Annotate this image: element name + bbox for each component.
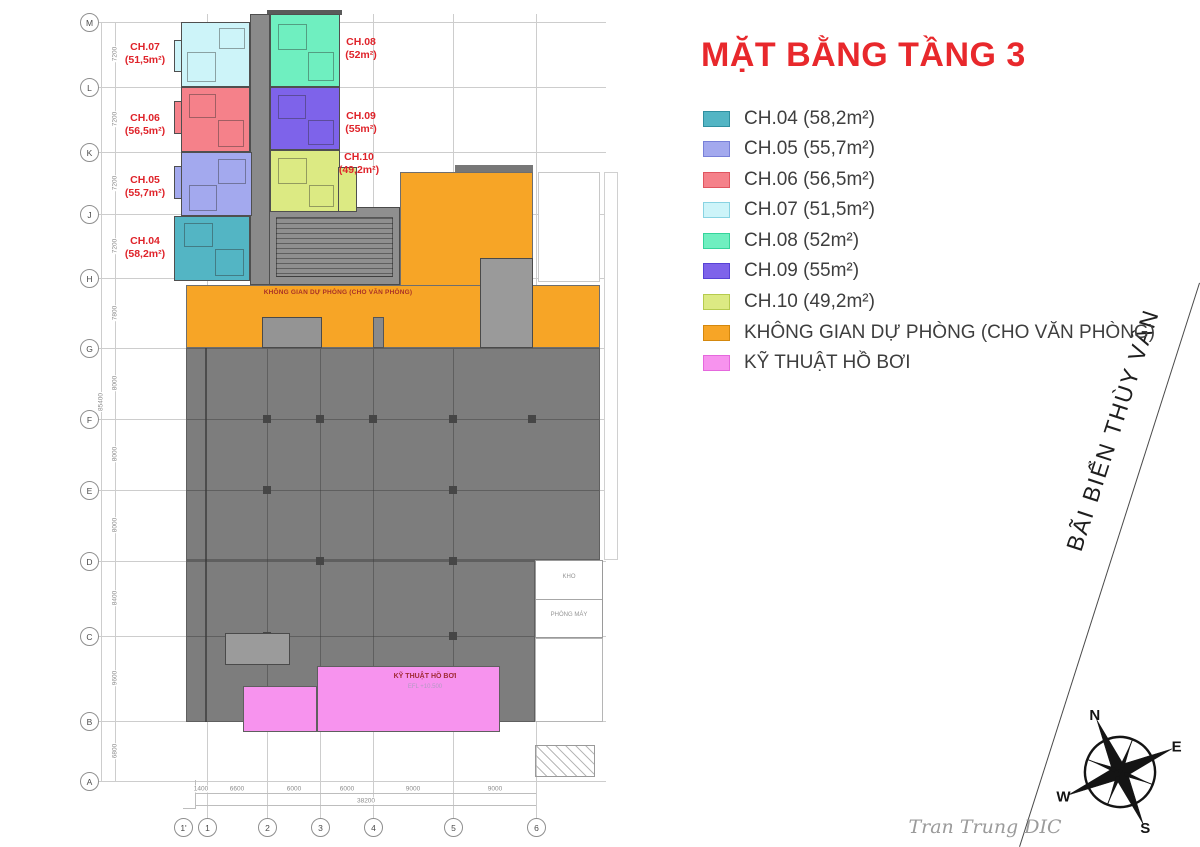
row-bubble-H: H <box>80 269 99 288</box>
plan-label-ch04-name: CH.04 <box>100 235 190 248</box>
room-label-phong-may: PHÒNG MÁY <box>538 612 600 618</box>
unit-ch08-room <box>278 24 307 50</box>
service-outline-lower <box>535 638 603 722</box>
body-line-hF <box>187 419 599 420</box>
plan-label-ch09: CH.09 (55m²) <box>316 110 406 136</box>
legend-item-ch05: CH.05 (55,7m²) <box>703 141 1155 158</box>
legend-label-ch10: CH.10 (49,2m²) <box>744 291 875 313</box>
col-bubble-5-label: 5 <box>451 823 456 833</box>
row-bubble-F-label: F <box>87 415 92 425</box>
leader-col-1p <box>183 808 196 809</box>
dim-2-3: 6000 <box>285 786 303 793</box>
row-bubble-M-label: M <box>86 18 93 28</box>
row-bubble-J-label: J <box>87 210 91 220</box>
row-bubble-M: M <box>80 13 99 32</box>
col-bubble-1-label: 1 <box>205 823 210 833</box>
dim-D-C: 8400 <box>112 590 119 606</box>
plan-label-ch06: CH.06 (56,5m²) <box>100 112 190 138</box>
dim-5-6: 9000 <box>486 786 504 793</box>
column-square <box>449 632 457 640</box>
corridor-core <box>250 14 270 285</box>
room-label-kho: KHO <box>543 574 595 580</box>
unit-ch10-room <box>309 185 334 207</box>
legend-swatch-ch05 <box>703 141 730 157</box>
legend-label-ch07: CH.07 (51,5m²) <box>744 199 875 221</box>
col-bubble-2: 2 <box>258 818 277 837</box>
plan-label-ch04: CH.04 (58,2m²) <box>100 235 190 261</box>
legend-item-ch10: CH.10 (49,2m²) <box>703 294 1155 311</box>
legend-swatch-ch06 <box>703 172 730 188</box>
plan-label-ch10-name: CH.10 <box>314 151 404 164</box>
legend-label-reserve: KHÔNG GIAN DỰ PHÒNG (CHO VĂN PHÒNG) <box>744 322 1155 344</box>
roof-cap-right <box>455 165 533 172</box>
dim-C-B: 9600 <box>112 670 119 686</box>
compass-label-e: E <box>1172 738 1182 755</box>
row-bubble-G-label: G <box>86 344 93 354</box>
dim-3-4: 6000 <box>338 786 356 793</box>
page-title: MẶT BẰNG TẦNG 3 <box>701 36 1026 75</box>
legend-item-ch06: CH.06 (56,5m²) <box>703 171 1155 188</box>
plan-label-ch09-name: CH.09 <box>316 110 406 123</box>
legend-item-ch09: CH.09 (55m²) <box>703 263 1155 280</box>
row-bubble-B: B <box>80 712 99 731</box>
column-pier-band <box>373 317 384 348</box>
row-bubble-B-label: B <box>87 717 93 727</box>
legend-swatch-ch08 <box>703 233 730 249</box>
dim-H-G: 7800 <box>112 305 119 321</box>
legend-swatch-ch09 <box>703 263 730 279</box>
legend-item-pool-tech: KỸ THUẬT HỒ BƠI <box>703 355 1155 372</box>
dim-1p-1: 1400 <box>192 786 210 793</box>
plan-label-ch05-area: (55,7m²) <box>100 187 190 200</box>
plan-label-ch09-area: (55m²) <box>316 123 406 136</box>
dim-cols-total: 38200 <box>355 798 377 805</box>
unit-ch05 <box>181 152 252 216</box>
dim-G-F: 8000 <box>112 375 119 391</box>
compass-label-s: S <box>1140 820 1150 837</box>
col-bubble-6: 6 <box>527 818 546 837</box>
dim-4-5: 9000 <box>404 786 422 793</box>
compass-label-n: N <box>1089 707 1100 724</box>
louver-slats <box>276 217 393 277</box>
col-bubble-3-label: 3 <box>318 823 323 833</box>
plan-label-ch08-area: (52m²) <box>316 49 406 62</box>
legend-item-ch07: CH.07 (51,5m²) <box>703 202 1155 219</box>
unit-ch09-room <box>278 95 306 119</box>
unit-ch06-room <box>189 94 216 117</box>
unit-ch07-room <box>187 52 216 82</box>
column-square <box>263 486 271 494</box>
body-line-hE <box>187 490 599 491</box>
legend-label-ch05: CH.05 (55,7m²) <box>744 138 875 160</box>
row-bubble-F: F <box>80 410 99 429</box>
row-bubble-D-label: D <box>86 557 92 567</box>
stair-core-band <box>262 317 322 348</box>
col-bubble-1p-label: 1' <box>180 823 186 833</box>
row-bubble-E-label: E <box>87 486 93 496</box>
column-square <box>449 486 457 494</box>
plan-label-ch04-area: (58,2m²) <box>100 248 190 261</box>
gridline-row-L <box>97 87 606 88</box>
col-bubble-1p: 1' <box>174 818 193 837</box>
row-bubble-A-label: A <box>87 777 93 787</box>
unit-ch05-room <box>218 159 246 183</box>
pool-tech-sublabel: EFL +10.500 <box>375 684 475 690</box>
reserve-space-label: KHÔNG GIAN DỰ PHÒNG (CHO VĂN PHÒNG) <box>238 289 438 296</box>
row-bubble-J: J <box>80 205 99 224</box>
gridline-col-1p <box>195 780 196 808</box>
plan-label-ch08-name: CH.08 <box>316 36 406 49</box>
legend-swatch-ch07 <box>703 202 730 218</box>
floor-plan-sheet: M L K J H G F E D C B A 1' 1 2 3 4 5 6 7… <box>0 0 1200 847</box>
hatched-ramp <box>535 745 595 777</box>
row-bubble-D: D <box>80 552 99 571</box>
plan-label-ch10-area: (49,2m²) <box>314 164 404 177</box>
column-square <box>369 415 377 423</box>
unit-ch10-room <box>278 158 307 184</box>
signature: Tran Trung DIC <box>908 816 1061 838</box>
body-wall-left <box>205 348 207 722</box>
service-rooms <box>535 560 603 638</box>
neighbor-outline-upper <box>538 172 600 282</box>
column-square <box>449 557 457 565</box>
legend-item-reserve: KHÔNG GIAN DỰ PHÒNG (CHO VĂN PHÒNG) <box>703 324 1155 341</box>
dim-F-E: 8000 <box>112 446 119 462</box>
col-bubble-4-label: 4 <box>371 823 376 833</box>
row-bubble-L-label: L <box>87 83 92 93</box>
column-square <box>528 415 536 423</box>
gridline-row-A <box>97 781 606 782</box>
plan-label-ch06-name: CH.06 <box>100 112 190 125</box>
pool-tech-left <box>243 686 317 732</box>
dim-1-2: 6600 <box>228 786 246 793</box>
row-bubble-E: E <box>80 481 99 500</box>
row-bubble-G: G <box>80 339 99 358</box>
plan-label-ch05-name: CH.05 <box>100 174 190 187</box>
column-square <box>263 415 271 423</box>
col-bubble-4: 4 <box>364 818 383 837</box>
unit-ch06-room <box>218 120 244 147</box>
stair-core-c <box>225 633 290 665</box>
plan-label-ch07-area: (51,5m²) <box>100 54 190 67</box>
col-bubble-1: 1 <box>198 818 217 837</box>
unit-ch04-room <box>215 249 244 276</box>
row-bubble-C: C <box>80 627 99 646</box>
row-bubble-L: L <box>80 78 99 97</box>
pool-tech-label: KỸ THUẬT HỒ BƠI <box>375 673 475 680</box>
unit-ch06 <box>181 87 250 152</box>
dim-E-D: 8000 <box>112 517 119 533</box>
unit-ch07-room <box>219 28 245 49</box>
row-bubble-H-label: H <box>86 274 92 284</box>
dim-rows-total: 85400 <box>98 392 105 412</box>
col-bubble-6-label: 6 <box>534 823 539 833</box>
legend-swatch-pool-tech <box>703 355 730 371</box>
legend-label-ch08: CH.08 (52m²) <box>744 230 859 252</box>
col-bubble-3: 3 <box>311 818 330 837</box>
body-line-v2 <box>267 349 268 721</box>
legend-label-ch09: CH.09 (55m²) <box>744 260 859 282</box>
plan-label-ch05: CH.05 (55,7m²) <box>100 174 190 200</box>
plan-label-ch07: CH.07 (51,5m²) <box>100 41 190 67</box>
plan-label-ch10: CH.10 (49,2m²) <box>314 151 404 177</box>
column-square <box>449 415 457 423</box>
row-bubble-K: K <box>80 143 99 162</box>
plan-label-ch06-area: (56,5m²) <box>100 125 190 138</box>
legend-swatch-reserve <box>703 325 730 341</box>
louver-core <box>267 207 400 285</box>
building-body-upper <box>186 348 600 560</box>
body-line-hD <box>187 561 534 562</box>
legend-label-ch04: CH.04 (58,2m²) <box>744 108 875 130</box>
unit-ch05-room <box>189 185 217 211</box>
stair-core-right <box>480 258 533 348</box>
row-bubble-C-label: C <box>86 632 92 642</box>
compass-rose: N E S W <box>1040 696 1200 847</box>
dim-B-A: 6800 <box>112 743 119 759</box>
legend-label-ch06: CH.06 (56,5m²) <box>744 169 875 191</box>
plan-label-ch07-name: CH.07 <box>100 41 190 54</box>
legend-item-ch08: CH.08 (52m²) <box>703 232 1155 249</box>
compass-label-w: W <box>1056 789 1071 806</box>
legend: CH.04 (58,2m²) CH.05 (55,7m²) CH.06 (56,… <box>703 110 1155 385</box>
dimline-bottom-inner <box>195 793 536 794</box>
legend-item-ch04: CH.04 (58,2m²) <box>703 110 1155 127</box>
room-divider <box>536 599 602 600</box>
column-square <box>316 557 324 565</box>
dimline-bottom-outer <box>195 805 536 806</box>
plan-label-ch08: CH.08 (52m²) <box>316 36 406 62</box>
row-bubble-K-label: K <box>87 148 93 158</box>
legend-swatch-ch04 <box>703 111 730 127</box>
col-bubble-2-label: 2 <box>265 823 270 833</box>
legend-swatch-ch10 <box>703 294 730 310</box>
col-bubble-5: 5 <box>444 818 463 837</box>
neighbor-strip-right <box>604 172 618 560</box>
row-bubble-A: A <box>80 772 99 791</box>
gridline-row-M <box>97 22 606 23</box>
unit-ch07 <box>181 22 250 87</box>
column-square <box>316 415 324 423</box>
legend-label-pool-tech: KỸ THUẬT HỒ BƠI <box>744 352 911 374</box>
